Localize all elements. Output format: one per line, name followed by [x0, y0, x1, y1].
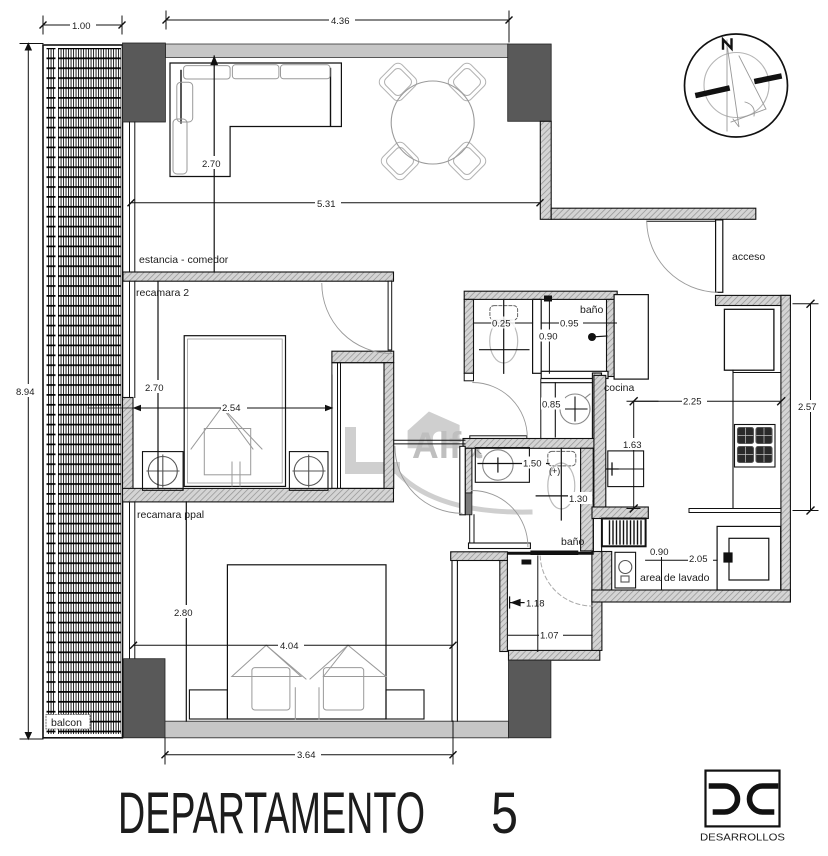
svg-text:2.70: 2.70 [202, 159, 221, 170]
svg-text:(+): (+) [549, 466, 560, 476]
svg-text:DEPARTAMENTO: DEPARTAMENTO [118, 781, 425, 846]
svg-text:5.31: 5.31 [317, 199, 336, 210]
svg-text:0.90: 0.90 [650, 547, 669, 558]
svg-text:1.30: 1.30 [569, 494, 588, 505]
svg-text:estancia - comedor: estancia - comedor [139, 254, 229, 266]
svg-text:baño: baño [561, 536, 585, 548]
svg-text:0.85: 0.85 [542, 400, 561, 411]
svg-text:0.25: 0.25 [492, 319, 511, 330]
svg-text:1.18: 1.18 [526, 599, 545, 610]
svg-text:2.25: 2.25 [683, 397, 702, 408]
svg-text:2.54: 2.54 [222, 403, 241, 414]
svg-text:3.64: 3.64 [297, 750, 316, 761]
svg-text:2.57: 2.57 [798, 402, 817, 413]
svg-text:area de lavado: area de lavado [640, 572, 710, 584]
svg-text:acceso: acceso [732, 251, 765, 263]
svg-text:0.90: 0.90 [539, 332, 558, 343]
svg-text:cocina: cocina [604, 382, 635, 394]
svg-text:recamara 2: recamara 2 [136, 287, 189, 299]
svg-text:4.36: 4.36 [331, 16, 350, 27]
svg-text:1.50: 1.50 [523, 459, 542, 470]
svg-text:DESARROLLOS: DESARROLLOS [700, 833, 785, 844]
svg-text:2.05: 2.05 [689, 554, 708, 565]
svg-text:4.04: 4.04 [280, 641, 299, 652]
svg-text:1.00: 1.00 [72, 21, 91, 32]
svg-text:baño: baño [580, 304, 604, 316]
svg-text:1.63: 1.63 [623, 440, 642, 451]
svg-text:2.80: 2.80 [174, 608, 193, 619]
svg-text:2.70: 2.70 [145, 383, 164, 394]
svg-text:8.94: 8.94 [16, 387, 35, 398]
svg-text:balcon: balcon [51, 717, 82, 729]
svg-text:5: 5 [491, 781, 518, 846]
svg-text:1.07: 1.07 [540, 631, 559, 642]
svg-text:recamara ppal: recamara ppal [137, 509, 204, 521]
svg-text:0.95: 0.95 [560, 319, 579, 330]
